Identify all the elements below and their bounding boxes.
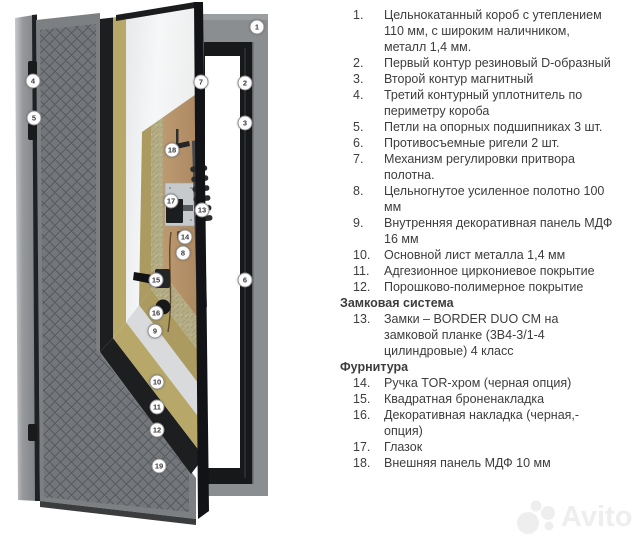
callout-11: 11 <box>150 400 165 415</box>
spec-item: 3.Второй контур магнитный <box>353 71 632 87</box>
spec-item: 15.Квадратная броненакладка <box>353 391 632 407</box>
spec-item-number: 10. <box>353 247 384 263</box>
spec-item-number: 5. <box>353 119 384 135</box>
callout-4: 4 <box>26 74 41 89</box>
spec-item-number: 13. <box>353 311 384 359</box>
callout-14: 14 <box>178 230 193 245</box>
spec-item-number: 14. <box>353 375 384 391</box>
spec-item-number: 1. <box>353 7 384 55</box>
spec-item: 10.Основной лист металла 1,4 мм <box>353 247 632 263</box>
callout-8: 8 <box>176 246 191 261</box>
spec-item-number: 17. <box>353 439 384 455</box>
spec-item-number: 8. <box>353 183 384 215</box>
callout-5: 5 <box>27 111 42 126</box>
spec-item-text: Внешняя панель МДФ 10 мм <box>384 455 615 471</box>
callout-3: 3 <box>238 116 253 131</box>
spec-item-number: 15. <box>353 391 384 407</box>
spec-item-text: Порошково-полимерное покрытие <box>384 279 615 295</box>
callout-10: 10 <box>150 375 165 390</box>
spec-item-number: 2. <box>353 55 384 71</box>
spec-item-text: Декоративная накладка (черная,- опция) <box>384 407 615 439</box>
spec-item-number: 9. <box>353 215 384 247</box>
callout-16: 16 <box>149 306 164 321</box>
spec-item: 6.Противосъемные ригели 2 шт. <box>353 135 632 151</box>
spec-section-heading: Фурнитура <box>340 359 632 375</box>
spec-item-text: Замки – BORDER DUO CM на замковой планке… <box>384 311 615 359</box>
layer-powder-coating <box>100 18 113 353</box>
spec-item: 4.Третий контурный уплотнитель по периме… <box>353 87 632 119</box>
spec-item-text: Петли на опорных подшипниках 3 шт. <box>384 119 615 135</box>
spec-item-number: 16. <box>353 407 384 439</box>
avito-watermark-text: Avito <box>561 501 632 534</box>
spec-item-text: Основной лист металла 1,4 мм <box>384 247 615 263</box>
spec-item: 9.Внутренняя декоративная панель МДФ 16 … <box>353 215 632 247</box>
spec-item: 17.Глазок <box>353 439 632 455</box>
spec-item: 12.Порошково-полимерное покрытие <box>353 279 632 295</box>
spec-item: 16.Декоративная накладка (черная,- опция… <box>353 407 632 439</box>
spec-list: 1.Цельнокатанный короб с утеплением 110 … <box>330 7 632 471</box>
callout-6: 6 <box>238 273 253 288</box>
spec-item-text: Второй контур магнитный <box>384 71 615 87</box>
spec-item-number: 12. <box>353 279 384 295</box>
spec-item: 13.Замки – BORDER DUO CM на замковой пла… <box>353 311 632 359</box>
spec-item-number: 3. <box>353 71 384 87</box>
spec-item-text: Механизм регулировки притвора полотна. <box>384 151 615 183</box>
spec-item-number: 18. <box>353 455 384 471</box>
spec-item-text: Цельнокатанный короб с утеплением 110 мм… <box>384 7 615 55</box>
spec-item-text: Первый контур резиновый D-образный <box>384 55 615 71</box>
spec-item: 5.Петли на опорных подшипниках 3 шт. <box>353 119 632 135</box>
callout-18: 18 <box>165 143 180 158</box>
callout-17: 17 <box>164 194 179 209</box>
adjuster-pin <box>176 129 179 144</box>
callout-13: 13 <box>195 203 210 218</box>
spec-item-text: Противосъемные ригели 2 шт. <box>384 135 615 151</box>
spec-section-heading: Замковая система <box>340 295 632 311</box>
callout-19: 19 <box>152 459 167 474</box>
spec-item-text: Глазок <box>384 439 615 455</box>
callout-9: 9 <box>148 324 163 339</box>
spec-item-number: 11. <box>353 263 384 279</box>
door-leaf <box>36 2 213 525</box>
spec-item-text: Квадратная броненакладка <box>384 391 615 407</box>
spec-item: 8.Цельногнутое усиленное полотно 100 мм <box>353 183 632 215</box>
spec-item: 7.Механизм регулировки притвора полотна. <box>353 151 632 183</box>
layer-zirconium <box>113 16 126 338</box>
door-frame <box>198 14 268 496</box>
callout-15: 15 <box>149 273 164 288</box>
door-listing-image: 12345678910111213141516171819 1.Цельнока… <box>0 0 634 540</box>
spec-item-number: 6. <box>353 135 384 151</box>
spec-item-number: 4. <box>353 87 384 119</box>
spec-item: 14.Ручка TOR-хром (черная опция) <box>353 375 632 391</box>
spec-item-text: Ручка TOR-хром (черная опция) <box>384 375 615 391</box>
spec-item: 18.Внешняя панель МДФ 10 мм <box>353 455 632 471</box>
hinge-middle <box>28 123 37 140</box>
avito-watermark: Avito <box>512 497 632 537</box>
callout-7: 7 <box>194 75 209 90</box>
callout-2: 2 <box>238 76 253 91</box>
hinge-bottom <box>28 424 37 441</box>
spec-item: 2.Первый контур резиновый D-образный <box>353 55 632 71</box>
spec-item-text: Цельногнутое усиленное полотно 100 мм <box>384 183 615 215</box>
spec-item: 11.Адгезионное циркониевое покрытие <box>353 263 632 279</box>
callout-12: 12 <box>150 423 165 438</box>
spec-item-text: Внутренняя декоративная панель МДФ 16 мм <box>384 215 615 247</box>
spec-item-text: Третий контурный уплотнитель по периметр… <box>384 87 615 119</box>
callout-1: 1 <box>250 20 265 35</box>
spec-item-text: Адгезионное циркониевое покрытие <box>384 263 615 279</box>
door-cutaway-diagram: 12345678910111213141516171819 <box>0 0 317 540</box>
spec-item: 1.Цельнокатанный короб с утеплением 110 … <box>353 7 632 55</box>
spec-item-number: 7. <box>353 151 384 183</box>
avito-logo-icon <box>512 497 558 537</box>
lock-latch <box>183 205 193 211</box>
